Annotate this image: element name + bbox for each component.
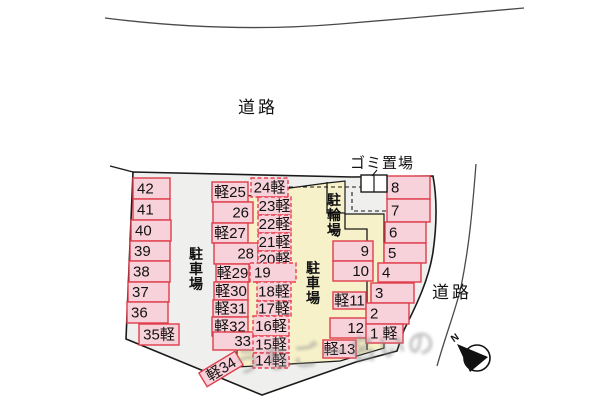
parking-space-label: 4 [382,265,390,282]
north-compass-icon: N [449,332,490,372]
parking-space-軽29: 軽29 [216,264,249,282]
parking-space-label: 14軽 [255,353,287,370]
parking-space-label: 42 [137,181,154,198]
parking-space-23軽: 23軽 [258,197,291,215]
parking-space-19: 19 [250,263,296,282]
parking-space-15軽: 15軽 [253,336,289,354]
parking-space-37: 37 [128,282,169,302]
parking-space-28: 28 [214,243,258,264]
garbage-box [361,170,387,192]
parking-space-41: 41 [133,199,170,220]
north-label: N [449,332,461,345]
parking-space-7: 7 [387,199,430,222]
parking-space-2: 2 [366,303,409,324]
parking-space-label: 37 [132,284,149,301]
parking-space-label: 8 [391,180,399,197]
parking-space-label: 軽27 [214,225,246,242]
parking-space-label: 33 [234,333,251,350]
parking-space-39: 39 [130,241,170,261]
road-line-top [105,8,524,28]
parking-space-label: 22軽 [259,216,291,233]
parking-space-label: 軽29 [217,265,249,282]
parking-space-label: 3 [375,285,383,302]
parking-space-軽31: 軽31 [213,300,248,318]
parking-space-label: 41 [137,202,154,219]
parking-space-label: 7 [391,203,399,220]
parking-space-4: 4 [378,263,421,282]
parking-space-9: 9 [333,241,373,261]
parking-space-36: 36 [127,302,168,323]
parking-space-label: 10 [352,263,369,280]
area-label-parking-left: 駐車場 [189,246,203,292]
parking-space-40: 40 [131,220,171,241]
parking-space-label: 21軽 [259,234,291,251]
parking-space-label: 軽25 [214,184,246,201]
site-boundary-extension [110,166,133,172]
site-plan: 4241403938373635軽軽2526軽2728軽29軽30軽31軽323… [0,0,600,400]
parking-space-12: 12 [330,318,368,338]
area-label-bicycle: 駐輪場 [327,192,342,238]
parking-space-14軽: 14軽 [253,353,289,370]
parking-space-33: 33 [213,332,255,350]
area-label-garbage: ゴミ置場 [350,154,414,172]
parking-space-label: 軽31 [215,301,247,318]
parking-space-label: 2 [370,306,378,323]
parking-space-label: 39 [134,243,151,260]
parking-space-21軽: 21軽 [258,233,291,251]
parking-space-label: 36 [131,305,148,322]
parking-space-label: 軽13 [324,341,356,358]
parking-space-5: 5 [384,243,426,263]
parking-space-1 軽: 1 軽 [366,324,403,343]
parking-space-10: 10 [333,261,373,281]
parking-space-6: 6 [385,222,426,243]
parking-space-17軽: 17軽 [257,301,291,318]
parking-space-軽25: 軽25 [212,182,248,202]
parking-space-軽11: 軽11 [333,292,366,310]
parking-space-label: 16軽 [255,318,287,335]
parking-space-3: 3 [371,283,414,303]
parking-space-label: 38 [133,264,150,281]
parking-space-label: 23軽 [259,198,291,215]
parking-space-label: 12 [347,320,364,337]
parking-space-軽27: 軽27 [212,223,248,243]
parking-space-軽13: 軽13 [323,340,356,358]
parking-space-42: 42 [133,178,170,199]
area-label-road-right: 道路 [432,283,472,302]
parking-space-label: 24軽 [254,180,286,197]
parking-space-label: 9 [361,243,369,260]
parking-space-label: 15軽 [255,337,287,354]
parking-space-35軽: 35軽 [139,324,179,345]
parking-space-label: 6 [389,225,397,242]
parking-space-label: 26 [232,205,249,222]
parking-space-label: 軽30 [215,283,247,300]
parking-space-label: 35軽 [143,327,175,344]
parking-space-18軽: 18軽 [257,282,291,301]
parking-space-22軽: 22軽 [258,215,291,233]
parking-space-24軽: 24軽 [251,178,288,197]
parking-space-label: 1 軽 [370,326,398,343]
parking-space-26: 26 [213,202,253,223]
parking-space-label: 28 [237,246,254,263]
parking-space-label: 軽11 [334,293,365,310]
parking-space-8: 8 [387,176,430,199]
parking-space-label: 5 [388,245,396,262]
parking-space-label: 19 [254,265,271,282]
parking-space-label: 17軽 [258,301,290,318]
parking-space-38: 38 [129,261,170,282]
parking-space-16軽: 16軽 [253,316,289,336]
parking-space-label: 18軽 [258,284,290,301]
area-label-road-top: 道路 [238,98,278,117]
parking-space-軽30: 軽30 [214,282,248,300]
area-label-parking-right: 駐車場 [306,260,320,306]
parking-space-label: 40 [135,223,152,240]
